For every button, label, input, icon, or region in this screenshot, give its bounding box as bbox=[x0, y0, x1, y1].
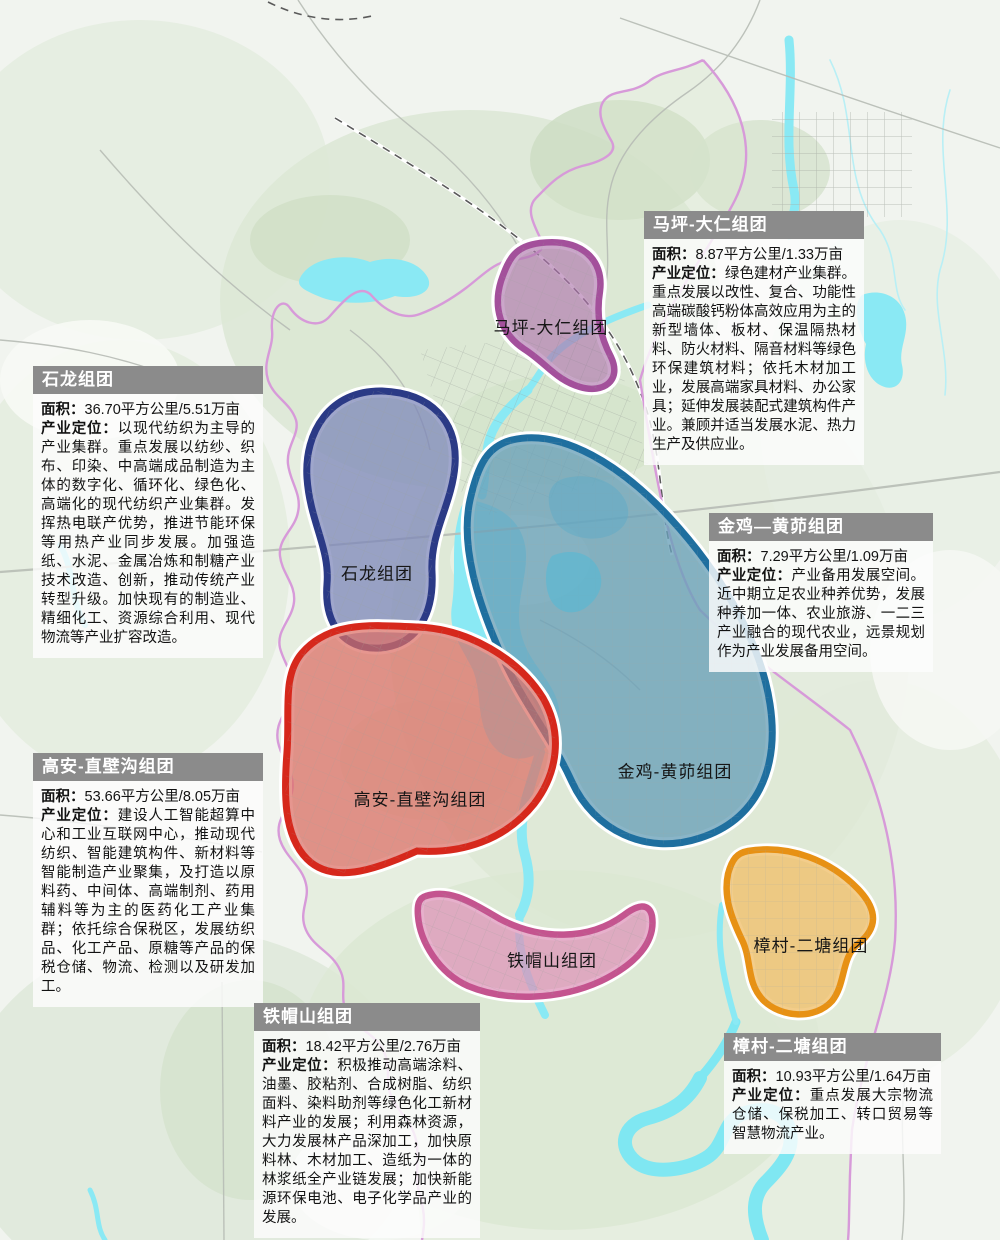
map-label-zhangcun-ertang: 樟村-二塘组团 bbox=[754, 932, 869, 957]
panel-body: 面积：7.29平方公里/1.09万亩 产业定位：产业备用发展空间。近中期立足农业… bbox=[709, 541, 933, 672]
panel-title: 高安-直壁沟组团 bbox=[33, 753, 263, 781]
panel-title: 铁帽山组团 bbox=[254, 1003, 480, 1031]
panel-title: 金鸡—黄茆组团 bbox=[709, 513, 933, 541]
map-label-maping-daren: 马坪-大仁组团 bbox=[494, 314, 609, 339]
map-label-jinji-huangmao: 金鸡-黄茆组团 bbox=[618, 758, 733, 783]
panel-title: 石龙组团 bbox=[33, 366, 263, 394]
panel-title: 樟村-二塘组团 bbox=[724, 1033, 941, 1061]
panel-body: 面积：18.42平方公里/2.76万亩 产业定位：积极推动高端涂料、油墨、胶粘剂… bbox=[254, 1031, 480, 1238]
cluster-panel-shilong: 石龙组团 面积：36.70平方公里/5.51万亩 产业定位：以现代纺织为主导的产… bbox=[33, 366, 263, 658]
panel-body: 面积：10.93平方公里/1.64万亩 产业定位：重点发展大宗物流仓储、保税加工… bbox=[724, 1061, 941, 1154]
cluster-panel-maping-daren: 马坪-大仁组团 面积：8.87平方公里/1.33万亩 产业定位：绿色建材产业集群… bbox=[644, 211, 864, 465]
map-label-gaoan-zhibigou: 高安-直壁沟组团 bbox=[354, 786, 487, 811]
cluster-panel-gaoan-zhibigou: 高安-直壁沟组团 面积：53.66平方公里/8.05万亩 产业定位：建设人工智能… bbox=[33, 753, 263, 1007]
panel-body: 面积：8.87平方公里/1.33万亩 产业定位：绿色建材产业集群。重点发展以改性… bbox=[644, 239, 864, 465]
map-label-shilong: 石龙组团 bbox=[341, 560, 413, 585]
map-label-tiemaoshan: 铁帽山组团 bbox=[507, 947, 597, 972]
planning-map-page: 马坪-大仁组团 石龙组团 金鸡-黄茆组团 高安-直壁沟组团 铁帽山组团 樟村-二… bbox=[0, 0, 1000, 1240]
cluster-panel-tiemaoshan: 铁帽山组团 面积：18.42平方公里/2.76万亩 产业定位：积极推动高端涂料、… bbox=[254, 1003, 480, 1238]
panel-body: 面积：36.70平方公里/5.51万亩 产业定位：以现代纺织为主导的产业集群。重… bbox=[33, 394, 263, 658]
region-shilong bbox=[307, 391, 455, 648]
panel-body: 面积：53.66平方公里/8.05万亩 产业定位：建设人工智能超算中心和工业互联… bbox=[33, 781, 263, 1007]
panel-title: 马坪-大仁组团 bbox=[644, 211, 864, 239]
cluster-panel-jinji-huangmao: 金鸡—黄茆组团 面积：7.29平方公里/1.09万亩 产业定位：产业备用发展空间… bbox=[709, 513, 933, 672]
cluster-panel-zhangcun-ertang: 樟村-二塘组团 面积：10.93平方公里/1.64万亩 产业定位：重点发展大宗物… bbox=[724, 1033, 941, 1154]
